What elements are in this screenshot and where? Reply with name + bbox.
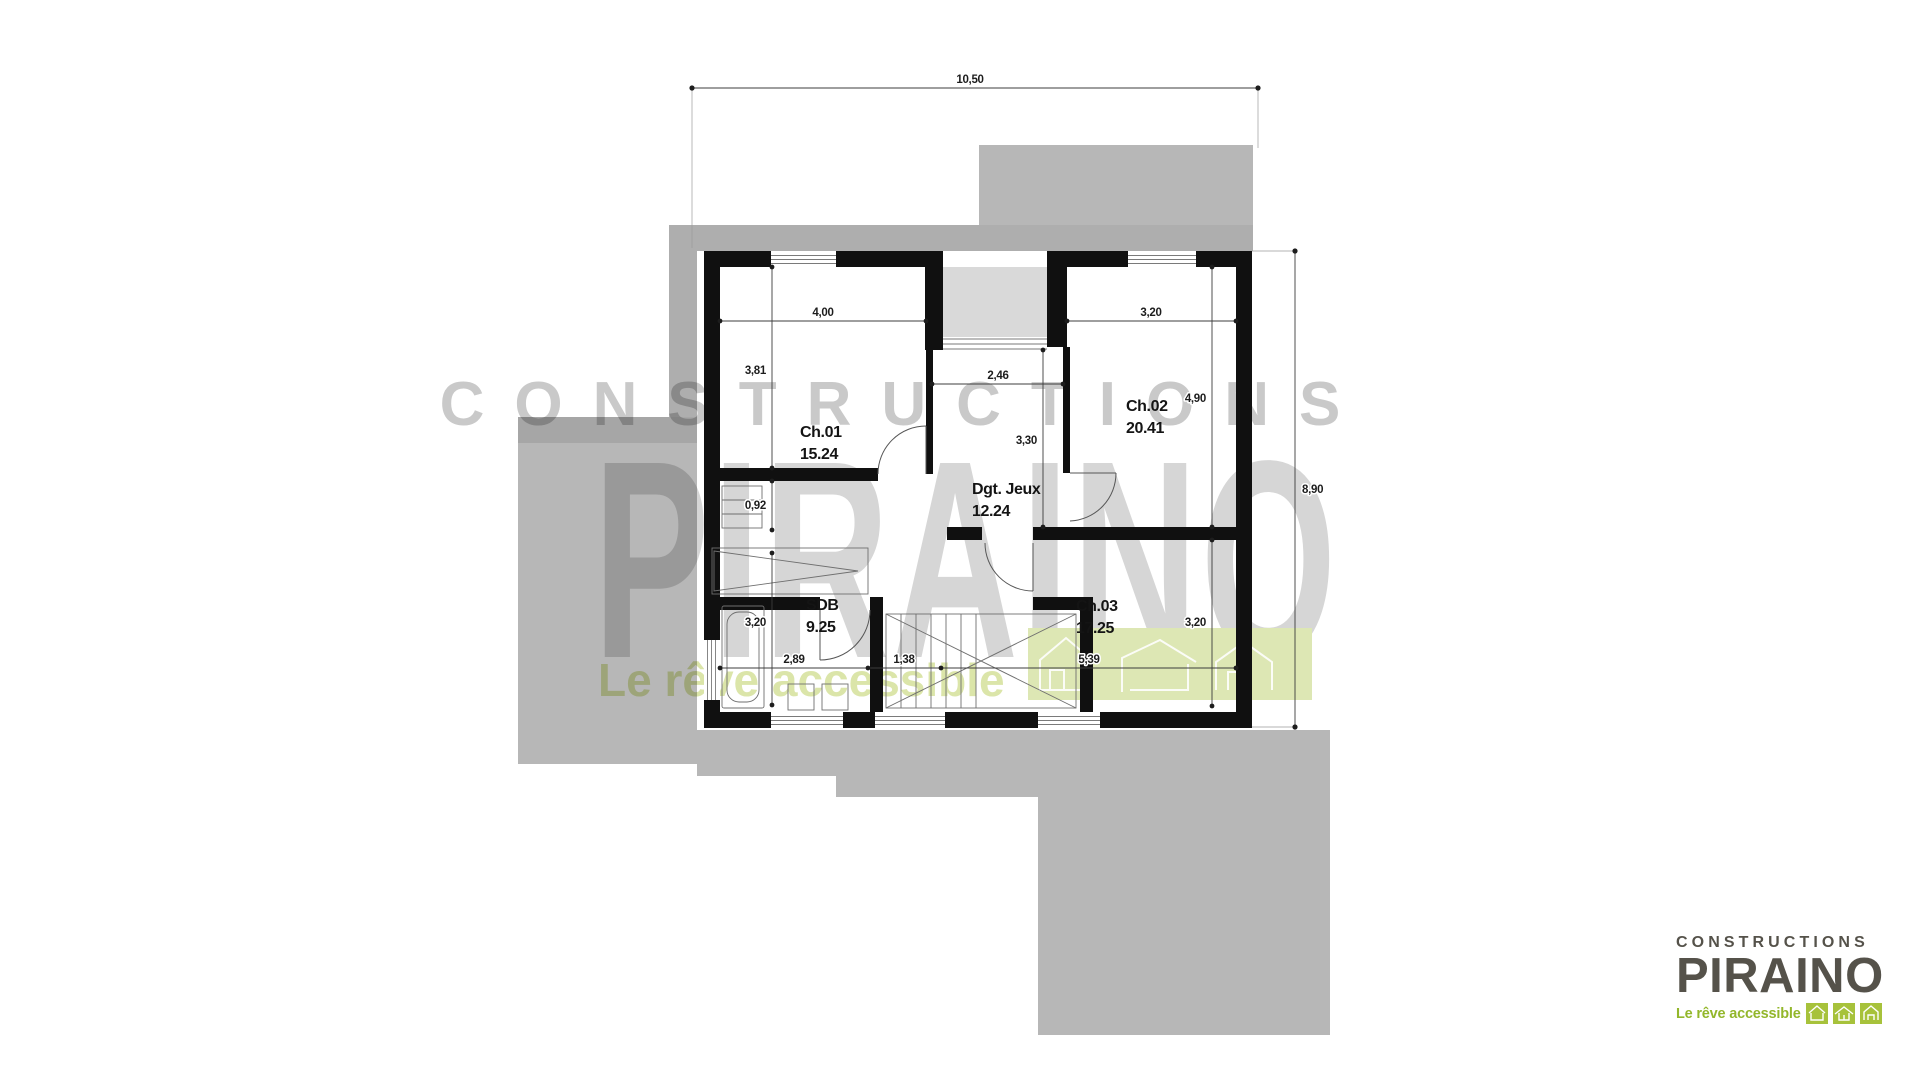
logo-house-icon (1806, 1003, 1828, 1024)
svg-text:2,46: 2,46 (987, 370, 1008, 382)
terrace-railing (943, 339, 1047, 349)
wall-ch02-left (1063, 347, 1070, 473)
company-logo: CONSTRUCTIONS PIRAINO Le rêve accessible (1676, 934, 1881, 1024)
svg-text:0,92: 0,92 (745, 500, 766, 512)
svg-text:5,39: 5,39 (1078, 654, 1099, 666)
wall-sdb-top (720, 597, 820, 610)
svg-text:17.25: 17.25 (1076, 620, 1115, 637)
floor-plan-canvas: CONSTRUCTIONS PIRAINO Le rêve accessible (0, 0, 1920, 1080)
dim-ch01-width: 4,00 (718, 307, 929, 323)
svg-text:4,00: 4,00 (812, 307, 833, 319)
window-icon (1128, 251, 1196, 267)
wall-ch02-bottom (1033, 527, 1236, 540)
roof-bottom-a (697, 730, 836, 776)
svg-text:1,38: 1,38 (893, 654, 915, 666)
wall-ch01-right (926, 350, 933, 474)
logo-piraino-text: PIRAINO (1676, 954, 1881, 999)
svg-text:4,90: 4,90 (1185, 393, 1206, 405)
svg-text:15.24: 15.24 (800, 446, 839, 463)
svg-text:Dgt. Jeux: Dgt. Jeux (972, 481, 1041, 498)
window-icon (771, 251, 836, 267)
svg-text:SDB: SDB (806, 597, 839, 614)
svg-text:3,30: 3,30 (1016, 435, 1037, 447)
svg-text:3,20: 3,20 (745, 617, 766, 629)
svg-text:20.41: 20.41 (1126, 420, 1165, 437)
svg-text:Ch.01: Ch.01 (800, 424, 842, 441)
logo-house-icon (1833, 1003, 1855, 1024)
svg-text:3,81: 3,81 (745, 365, 767, 377)
roof-bottom-block (1038, 730, 1330, 1035)
terrace-left-stub (925, 251, 943, 350)
svg-text:3,20: 3,20 (1185, 617, 1206, 629)
window-icon (704, 640, 720, 700)
window-icon (1038, 712, 1100, 728)
logo-tagline: Le rêve accessible (1676, 1006, 1801, 1022)
window-icon (771, 712, 843, 728)
wall-stair-left (870, 597, 883, 712)
svg-text:2,89: 2,89 (783, 654, 804, 666)
svg-text:8,90: 8,90 (1302, 484, 1323, 496)
terrace-right-stub (1047, 251, 1067, 347)
wall-landing-stub (947, 527, 982, 540)
logo-house-icon (1860, 1003, 1882, 1024)
roof-top-band (669, 225, 1253, 251)
svg-text:Ch.02: Ch.02 (1126, 398, 1168, 415)
svg-text:Ch.03: Ch.03 (1076, 598, 1118, 615)
roof-bottom-b (836, 730, 1038, 797)
svg-text:12.24: 12.24 (972, 503, 1011, 520)
window-icon (875, 712, 945, 728)
wall-ch01-bottom (720, 468, 878, 481)
svg-text:9.25: 9.25 (806, 619, 836, 636)
svg-text:10,50: 10,50 (956, 74, 983, 86)
svg-text:3,20: 3,20 (1140, 307, 1161, 319)
